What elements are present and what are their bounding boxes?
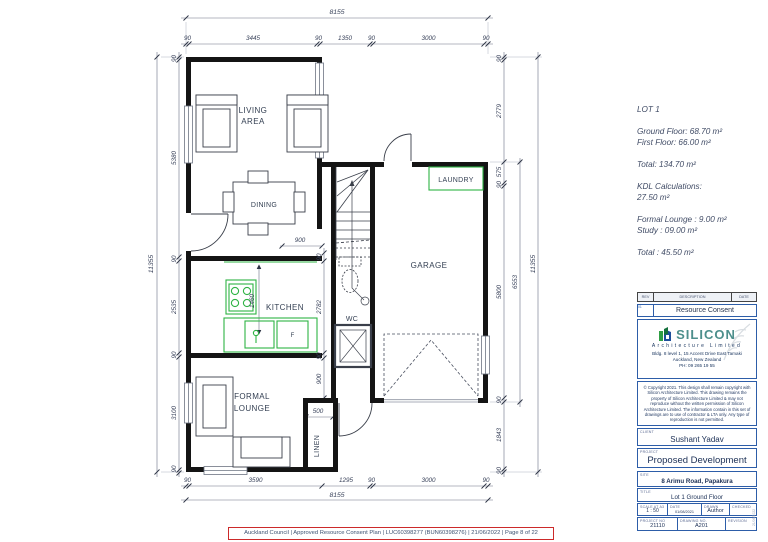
label-kitchen: KITCHEN (266, 303, 304, 312)
dim: 900 (295, 237, 306, 244)
sheet-title: Lot 1 Ground Floor (638, 494, 756, 501)
stairs (336, 167, 370, 305)
dim: 575 (496, 166, 503, 177)
date-label: DATE (670, 505, 680, 509)
scale-date-row: SCALE AT A3 1 : 50 DATE 01/08/2021 DRAWN… (637, 503, 757, 516)
dim: 90 (368, 35, 376, 42)
dim: 8155 (329, 9, 344, 16)
dim: 90 (496, 396, 503, 404)
dim: 90 (184, 35, 192, 42)
label-living-2: AREA (241, 117, 265, 126)
dim: 90 (315, 35, 323, 42)
label-garage: GARAGE (411, 261, 448, 270)
first-floor-area: First Floor: 66.00 m² (637, 137, 768, 148)
dim: 1843 (496, 428, 503, 443)
drawn-value: Author (702, 508, 729, 514)
dim: 90 (316, 352, 323, 360)
dim: 11355 (530, 255, 537, 274)
number-row: PROJECT NO 21110 DRAWING NO. A201 REVISI… (637, 517, 757, 531)
kdl-value: 27.50 m² (637, 192, 768, 203)
dim: 90 (496, 181, 503, 189)
total-area: Total: 134.70 m² (637, 159, 768, 170)
revision-code: 01 (638, 305, 654, 316)
client-field: CLIENT Sushant Yadav (637, 428, 757, 446)
drawing-number: A201 (678, 523, 725, 529)
dim: 90 (482, 477, 490, 484)
scale-field: SCALE AT A3 1 : 50 (638, 504, 668, 515)
revision-row: 01 Resource Consent (637, 304, 757, 317)
dim: 3100 (171, 406, 178, 421)
label-wc: WC (346, 316, 358, 323)
checked-label: CHECKED (732, 505, 751, 509)
dim: 90 (171, 465, 178, 473)
ground-floor-area: Ground Floor: 68.70 m² (637, 126, 768, 137)
project-number-field: PROJECT NO 21110 (638, 518, 678, 530)
dim: 90 (368, 477, 376, 484)
site-label: SITE (640, 473, 649, 477)
project-number: 21110 (638, 523, 677, 529)
label-formal-2: LOUNGE (234, 404, 270, 413)
dim: 1460 (249, 294, 256, 309)
date-field: DATE 01/08/2021 (668, 504, 702, 515)
project-label: PROJECT (640, 450, 658, 454)
client-name: Sushant Yadav (638, 435, 756, 444)
project-name: Proposed Development (638, 455, 756, 466)
dim: 1350 (338, 35, 353, 42)
council-approval-footer: Auckland Council | Approved Resource Con… (228, 527, 554, 540)
label-living-1: LIVING (239, 106, 268, 115)
brand-name: SILICON (676, 327, 736, 342)
dim: 500 (313, 408, 324, 415)
dim: 90 (316, 253, 323, 261)
floor-plan: LIVING AREA DINING KITCHEN FORMAL LOUNGE… (0, 0, 560, 542)
dim: 3000 (421, 477, 436, 484)
grand-total-area: Total : 45.50 m² (637, 247, 768, 258)
wc-fixtures (335, 257, 371, 367)
dim: 5380 (171, 151, 178, 166)
label-formal-1: FORMAL (234, 392, 270, 401)
silicon-logo-icon (658, 327, 673, 342)
title-label: TITLE (640, 490, 651, 494)
room-labels: LIVING AREA DINING KITCHEN FORMAL LOUNGE… (234, 106, 474, 457)
dim: 11355 (148, 255, 155, 274)
formal-lounge-area: Formal Lounge : 9.00 m² (637, 214, 768, 225)
project-field: PROJECT Proposed Development (637, 448, 757, 468)
client-label: CLIENT (640, 430, 654, 434)
lot-info: LOT 1 Ground Floor: 68.70 m² First Floor… (637, 104, 768, 258)
dim: 8155 (329, 492, 344, 499)
dim: 3590 (248, 477, 263, 484)
site-address: 8 Arimu Road, Papakura (638, 478, 756, 485)
dim: 90 (496, 467, 503, 475)
dim: 90 (496, 55, 503, 63)
copyright-notice: © Copyright 2021. This design shall rema… (637, 381, 757, 426)
rev-col-header: REV (638, 293, 654, 301)
dim: 90 (184, 477, 192, 484)
dim: 90 (171, 351, 178, 359)
kdl-title: KDL Calculations: (637, 181, 768, 192)
dim: 90 (171, 255, 178, 263)
dim: 2535 (171, 300, 178, 316)
dim: 900 (316, 373, 323, 384)
dim: 2782 (316, 300, 323, 316)
dim: 2779 (496, 104, 503, 120)
revision-table-header: REV DESCRIPTION DATE (637, 292, 757, 302)
dim: 90 (482, 35, 490, 42)
label-laundry: LAUNDRY (438, 177, 473, 184)
brand-subtitle: Architecture Limited (638, 343, 756, 349)
drawing-sheet: LIVING AREA DINING KITCHEN FORMAL LOUNGE… (0, 0, 768, 542)
date-value: 01/08/2021 (668, 510, 701, 514)
dim: 6553 (512, 275, 519, 290)
firm-logo-block: SILICON Architecture Limited Bldg. 8 lev… (637, 319, 757, 379)
firm-phone: PH: 09 265 19 55 (638, 363, 756, 369)
scale-value: 1 : 50 (638, 508, 667, 514)
study-area: Study : 09.00 m² (637, 225, 768, 236)
dim: 5800 (496, 285, 503, 300)
sheet-title-field: TITLE Lot 1 Ground Floor (637, 488, 757, 502)
site-field: SITE 8 Arimu Road, Papakura (637, 471, 757, 487)
dim: 90 (171, 55, 178, 63)
drawn-field: DRAWN Author (702, 504, 730, 515)
revision-label: REVISION (728, 519, 747, 523)
dim: 1295 (339, 477, 354, 484)
drawing-number-field: DRAWING NO. A201 (678, 518, 726, 530)
lot-title: LOT 1 (637, 104, 768, 115)
garage-door (384, 334, 478, 402)
dim: 3000 (421, 35, 436, 42)
label-dining: DINING (251, 202, 277, 209)
label-fridge: F (291, 333, 295, 339)
dim: 3445 (246, 35, 261, 42)
description-col-header: DESCRIPTION (654, 293, 732, 301)
label-linen: LINEN (314, 435, 321, 457)
revision-description: Resource Consent (654, 305, 756, 316)
